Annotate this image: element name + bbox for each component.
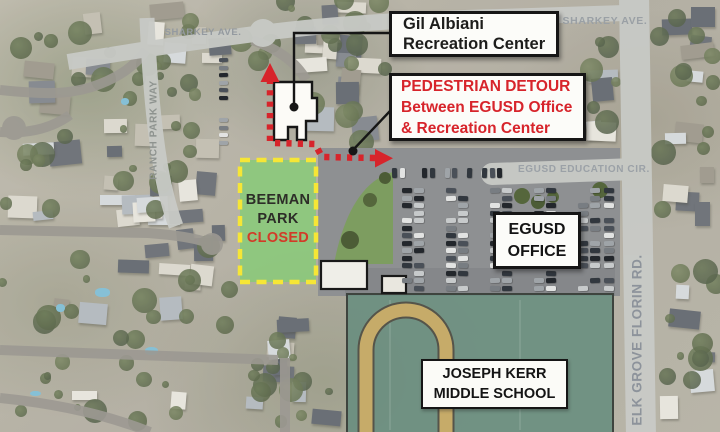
callout-egusd-line2: OFFICE: [496, 241, 578, 263]
leader-dot-recreation-center: [290, 103, 299, 112]
callout-detour-line3: & Recreation Center: [401, 118, 583, 139]
street-label-elk-grove-florin-rd: ELK GROVE FLORIN RD.: [630, 254, 645, 425]
detour-arrow-up-icon: [261, 63, 280, 82]
map-overlay-graphics: [0, 0, 720, 432]
outbuilding-large: [321, 261, 367, 289]
callout-pedestrian-detour: PEDESTRIAN DETOUR Between EGUSD Office &…: [389, 73, 586, 141]
callout-gil-line2: Recreation Center: [403, 34, 556, 54]
beeman-park-label: BEEMAN PARK CLOSED: [238, 191, 318, 248]
street-label-sharkey-ave-left: SHARKEY AVE.: [158, 27, 248, 38]
leader-dot-pedestrian-detour: [349, 147, 358, 156]
callout-egusd-office: EGUSD OFFICE: [493, 212, 581, 269]
callout-egusd-line1: EGUSD: [496, 219, 578, 241]
beeman-park-line2: PARK: [238, 210, 318, 229]
outbuilding-small: [382, 276, 406, 293]
callout-kerr-line2: MIDDLE SCHOOL: [423, 384, 566, 404]
callout-kerr-line1: JOSEPH KERR: [423, 364, 566, 384]
callout-joseph-kerr-middle-school: JOSEPH KERR MIDDLE SCHOOL: [421, 359, 568, 409]
leader-pedestrian-detour: [353, 110, 391, 150]
street-label-egusd-education-cir: EGUSD EDUCATION CIR.: [518, 164, 646, 175]
beeman-park-closed-status: CLOSED: [238, 229, 318, 248]
callout-gil-line1: Gil Albiani: [403, 14, 556, 34]
street-label-ranch-park-way: RANCH PARK WAY: [149, 80, 160, 180]
beeman-park-line1: BEEMAN: [238, 191, 318, 210]
road-intersection-bulb: [249, 19, 277, 47]
callout-gil-albiani-recreation-center: Gil Albiani Recreation Center: [389, 11, 559, 57]
street-label-sharkey-ave-right: SHARKEY AVE.: [556, 15, 654, 27]
callout-detour-line1: PEDESTRIAN DETOUR: [401, 76, 583, 97]
callout-detour-line2: Between EGUSD Office: [401, 97, 583, 118]
detour-map: SHARKEY AVE. SHARKEY AVE. RANCH PARK WAY…: [0, 0, 720, 432]
